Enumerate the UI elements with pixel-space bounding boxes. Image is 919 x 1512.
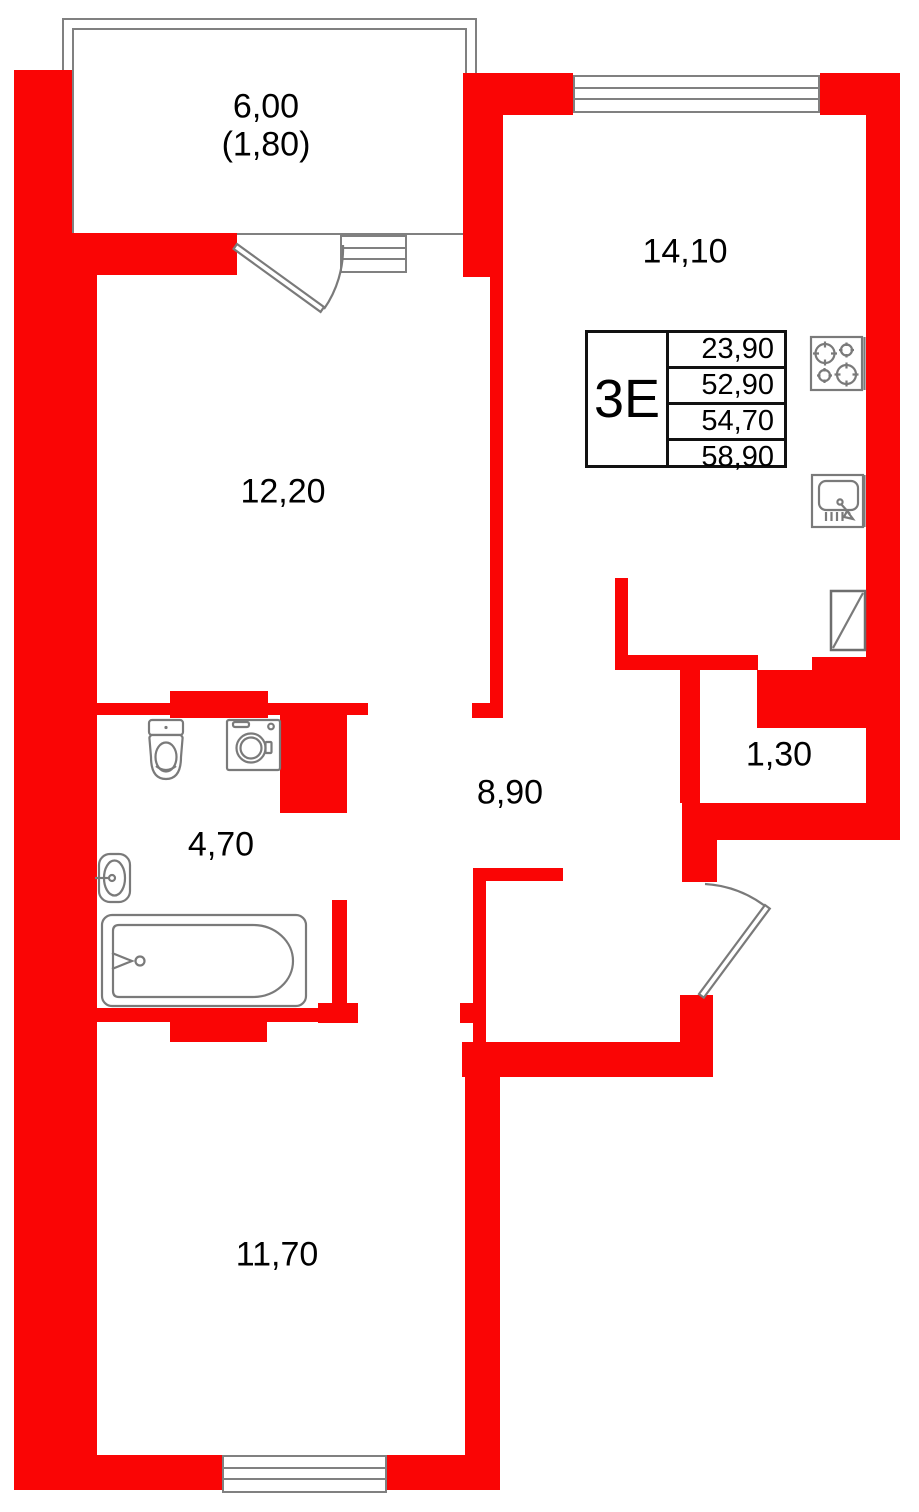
- card-row-kitchen-area: 23,90: [669, 333, 784, 369]
- apartment-type-label: 3Е: [588, 333, 669, 465]
- card-row-total-area: 58,90: [669, 441, 784, 474]
- kitchen-area-label: 14,10: [642, 233, 727, 270]
- kitchen-sink-icon: [812, 475, 865, 527]
- entry-door-icon: [699, 884, 770, 998]
- hallway-area-label: 8,90: [477, 774, 543, 811]
- bathroom-area-label: 4,70: [188, 826, 254, 863]
- apartment-card-rows: 23,90 52,90 54,70 58,90: [669, 333, 784, 465]
- apartment-card: 3Е 23,90 52,90 54,70 58,90: [585, 330, 787, 468]
- bathtub-icon: [102, 915, 306, 1006]
- vent-shaft-icon: [831, 591, 865, 650]
- balcony-coefficient-label: (1,80): [222, 126, 311, 163]
- washing-machine-icon: [227, 720, 280, 770]
- card-row-area: 54,70: [669, 405, 784, 441]
- balcony-door-icon: [234, 244, 343, 312]
- card-row-living-area: 52,90: [669, 369, 784, 405]
- stove-icon: [811, 337, 865, 390]
- bedroom-area-label: 11,70: [236, 1236, 319, 1273]
- balcony-area-label: 6,00: [233, 88, 299, 125]
- floor-plan-canvas: 6,00 (1,80) 14,10 12,20 1,30 8,90 4,70 1…: [0, 0, 919, 1512]
- wash-basin-icon: [95, 854, 130, 902]
- toilet-icon: [149, 720, 183, 779]
- storage-area-label: 1,30: [746, 736, 812, 773]
- living-room-area-label: 12,20: [240, 473, 325, 510]
